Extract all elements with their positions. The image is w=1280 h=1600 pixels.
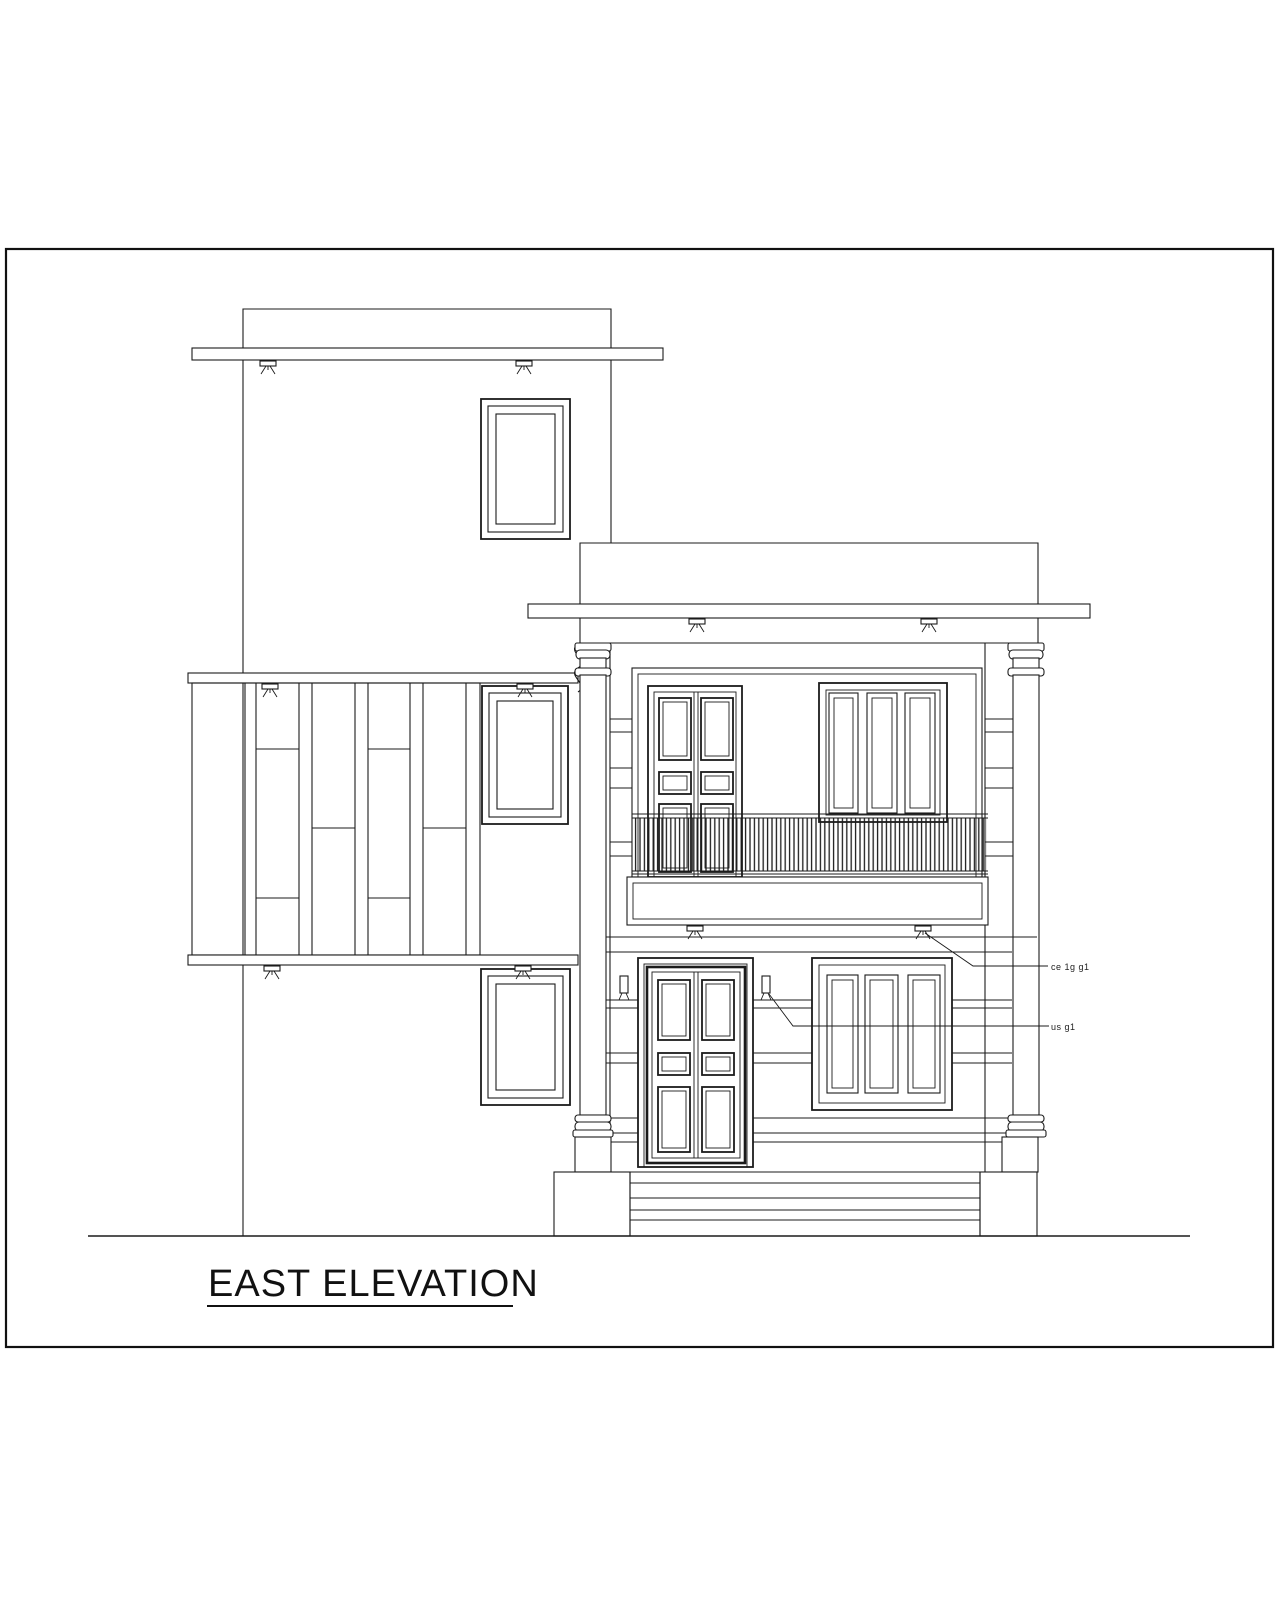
rain-water-spout-icon — [262, 684, 278, 697]
ground-window — [812, 958, 952, 1110]
column-left — [573, 643, 613, 1172]
column-right — [1002, 643, 1046, 1172]
drawing-sheet: ce 1g g1 us g1 EAST ELEVATION — [0, 0, 1280, 1600]
wall-light-icon — [619, 976, 629, 1000]
drawing-title: EAST ELEVATION — [208, 1263, 539, 1305]
rain-water-spout-icon — [516, 361, 532, 374]
ground-door — [638, 958, 753, 1167]
step-cheek-right — [980, 1172, 1037, 1236]
wall-light-icon — [761, 976, 771, 1000]
balcony-fascia — [627, 877, 988, 939]
cladding-joints — [256, 749, 466, 898]
east-elevation-drawing: ce 1g g1 us g1 EAST ELEVATION — [0, 0, 1280, 1600]
tower-parapet — [243, 309, 611, 348]
column-pedestal — [1002, 1137, 1038, 1172]
rain-water-spout-icon — [921, 619, 937, 632]
column-pedestal — [575, 1137, 611, 1172]
main-roof-slab — [528, 604, 1090, 618]
roof-note-text: ce 1g g1 — [1051, 962, 1090, 972]
tower-window-bottom — [481, 969, 570, 1105]
tower-window-top — [481, 399, 570, 539]
step-cheek-left — [554, 1172, 630, 1236]
cladding-panel — [192, 683, 480, 955]
tower-roof-slab — [192, 348, 663, 360]
balcony-railing — [632, 814, 988, 874]
entrance-steps — [554, 1172, 1037, 1236]
wall-note-text: us g1 — [1051, 1022, 1076, 1032]
lower-slab — [188, 955, 578, 965]
rain-water-spout-icon — [260, 361, 276, 374]
rain-water-spout-icon — [264, 966, 280, 979]
main-block — [528, 543, 1090, 1236]
tower-window-middle — [482, 686, 568, 824]
cladding-verticals — [245, 683, 466, 955]
title-block: EAST ELEVATION — [207, 1263, 539, 1306]
upper-window — [819, 683, 947, 822]
border-frame — [6, 249, 1273, 1347]
rain-water-spout-icon — [689, 619, 705, 632]
upper-slab — [188, 673, 578, 683]
main-parapet — [580, 543, 1038, 604]
